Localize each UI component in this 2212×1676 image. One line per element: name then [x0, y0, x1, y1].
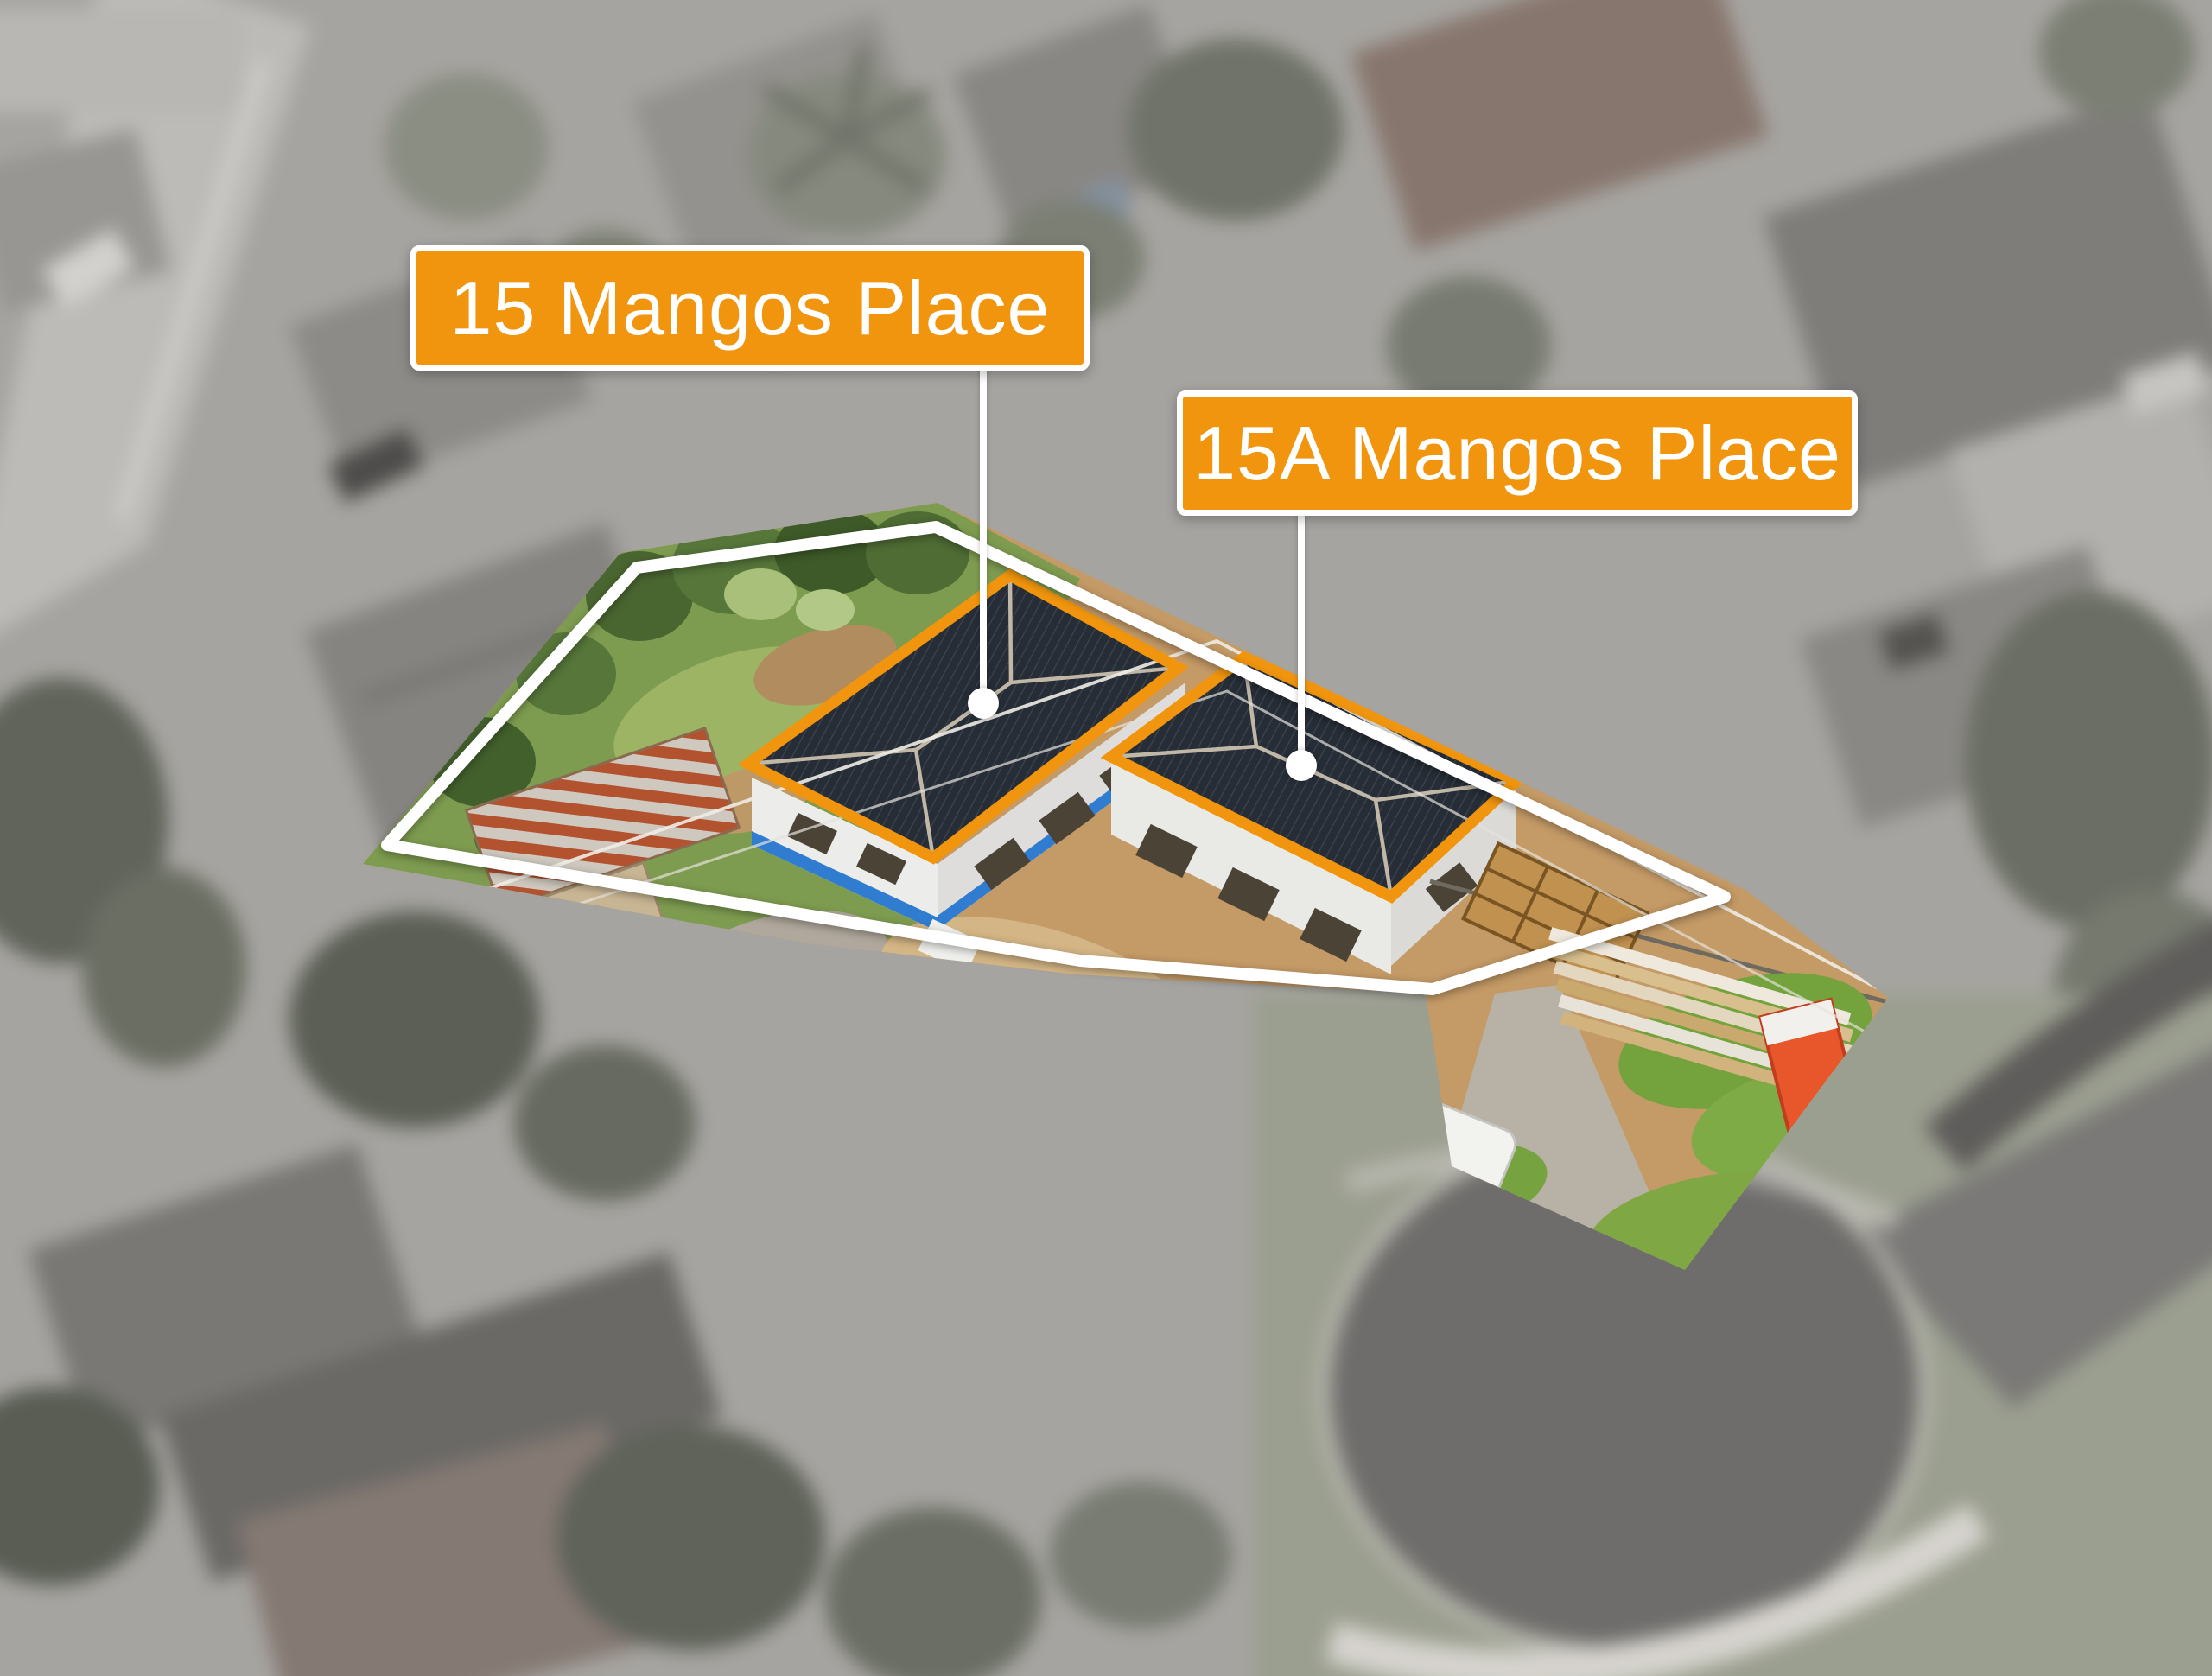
leader-dot-15a — [1286, 750, 1317, 781]
property-photo-layer — [0, 0, 2212, 1676]
address-label-15a-mangos-place: 15A Mangos Place — [1177, 390, 1858, 516]
address-label-15-mangos-place: 15 Mangos Place — [410, 245, 1090, 371]
address-label-15-text: 15 Mangos Place — [450, 264, 1051, 352]
address-label-15a-text: 15A Mangos Place — [1193, 409, 1841, 498]
leader-line-15 — [980, 363, 987, 703]
leader-dot-15 — [968, 688, 999, 719]
aerial-marketing-image: 15 Mangos Place 15A Mangos Place — [0, 0, 2212, 1676]
leader-line-15a — [1298, 510, 1305, 765]
sand-patch-2 — [1103, 993, 1403, 1193]
